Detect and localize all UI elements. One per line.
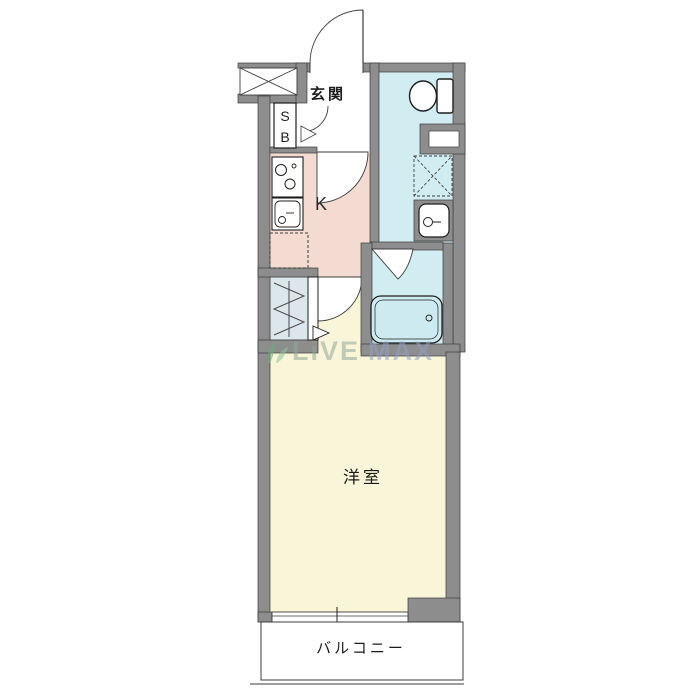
kitchen-sink-icon <box>272 198 303 230</box>
wall-entrance-left <box>296 63 307 103</box>
wall-top-over-meter-box <box>238 63 297 68</box>
stove-icon <box>272 157 303 197</box>
kitchen-label: K <box>315 195 327 213</box>
floor-plan-canvas: 玄関 SB K 洋室 バルコニー LiVE MAX <box>0 0 700 700</box>
meter-box-icon <box>240 68 297 95</box>
entrance-door-opening <box>310 62 363 73</box>
entrance-door-arc <box>310 10 363 63</box>
wall-closet-top <box>258 268 318 277</box>
wall-bath-bottom <box>361 344 460 356</box>
western-room-label: 洋室 <box>330 469 396 486</box>
wall-bottom-right-notch <box>408 598 460 622</box>
wall-right-lower <box>446 352 460 622</box>
toilet-icon <box>410 79 454 113</box>
wall-bath-left <box>361 243 372 352</box>
wash-basin-icon <box>414 200 453 241</box>
balcony-label: バルコニー <box>298 641 424 656</box>
wall-closet-bottom <box>258 340 318 353</box>
wall-right-upper <box>453 63 465 352</box>
wall-left <box>258 96 270 622</box>
entrance-label: 玄関 <box>310 87 346 102</box>
shoe-box-label-s: S <box>280 108 289 124</box>
wall-bath-right <box>443 243 453 352</box>
wall-niche <box>420 124 465 154</box>
floor-plan-drawing <box>0 0 700 700</box>
wall-entrance-washroom-divider <box>370 63 379 243</box>
shoe-box-label: SB <box>275 106 295 148</box>
shoe-box-label-b: B <box>280 129 289 145</box>
bathtub-icon <box>371 296 442 343</box>
wall-bottom-left-jamb <box>258 612 272 622</box>
